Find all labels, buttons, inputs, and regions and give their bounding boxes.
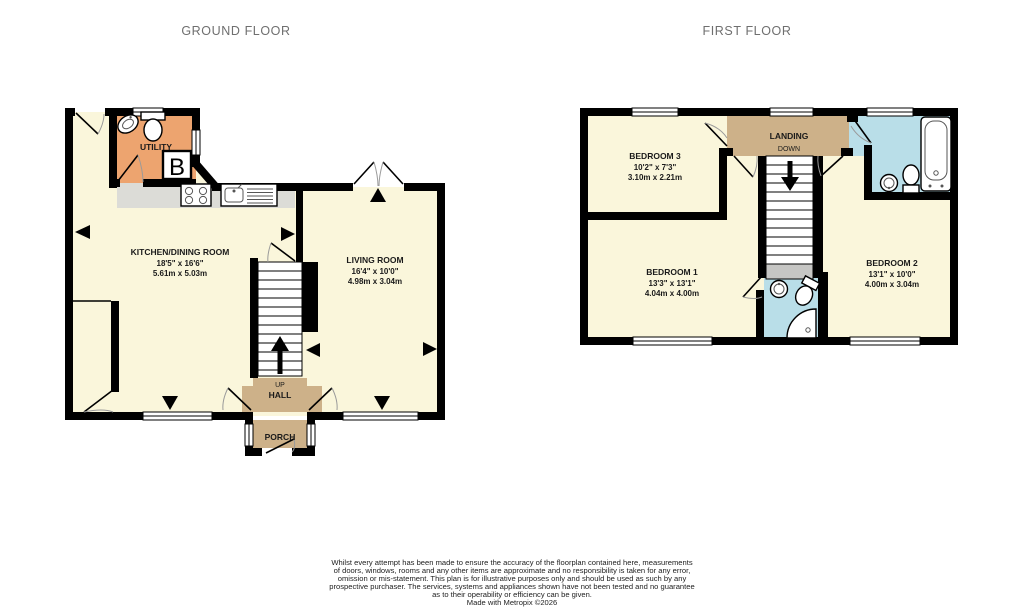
kitchen-window [143, 412, 212, 420]
porch-left-window [245, 424, 253, 446]
bedroom1-imperial: 13'3" x 13'1" [649, 279, 696, 288]
bedroom3-window [632, 108, 678, 116]
first-floor-stairs [766, 156, 813, 279]
disclaimer-block: Whilst every attempt has been made to en… [329, 558, 694, 607]
ground-floor-title: GROUND FLOOR [181, 24, 290, 38]
living-metric: 4.98m x 3.04m [348, 277, 402, 286]
boiler-box: B [163, 151, 191, 181]
patio-doors [354, 162, 403, 186]
bedroom3-imperial: 10'2" x 7'3" [634, 163, 677, 172]
landing-label: LANDING [770, 131, 809, 141]
up-label: UP [275, 382, 285, 389]
porch-label: PORCH [265, 432, 296, 442]
down-label: DOWN [778, 146, 800, 153]
kitchen-label: KITCHEN/DINING ROOM [131, 247, 230, 257]
bedroom1-metric: 4.04m x 4.00m [645, 289, 699, 298]
kitchen-metric: 5.61m x 5.03m [153, 269, 207, 278]
bedroom2-label: BEDROOM 2 [866, 258, 918, 268]
bedroom1-window [633, 337, 712, 345]
metropix-credit: Made with Metropix ©2026 [467, 598, 557, 607]
bedroom2-metric: 4.00m x 3.04m [865, 280, 919, 289]
living-room-window [343, 412, 418, 420]
shower-basin-icon [771, 281, 788, 298]
landing-window [770, 108, 813, 116]
floorplan-page: GROUND FLOOR FIRST FLOOR [0, 0, 1024, 612]
hall-label: HALL [269, 390, 292, 400]
bathroom-window [867, 108, 913, 116]
living-imperial: 16'4" x 10'0" [352, 267, 399, 276]
porch-right-window [307, 424, 315, 446]
bathroom-toilet-icon [903, 165, 919, 193]
bath-icon [921, 117, 951, 191]
boiler-label: B [169, 154, 185, 181]
bedroom3-metric: 3.10m x 2.21m [628, 173, 682, 182]
ground-floor-plan: B UTILITY KITCHEN/DINING ROOM 18'5" x 16… [65, 108, 445, 456]
bedroom2-nook [821, 156, 866, 196]
bathroom-basin-icon [881, 175, 898, 192]
bedroom2-imperial: 13'1" x 10'0" [869, 270, 916, 279]
ground-floor-stairs [258, 262, 302, 376]
utility-label: UTILITY [140, 142, 172, 152]
bedroom1-label: BEDROOM 1 [646, 267, 698, 277]
utility-side-window [192, 130, 200, 155]
first-floor-title: FIRST FLOOR [702, 24, 791, 38]
bedroom2-window [850, 337, 920, 345]
living-label: LIVING ROOM [346, 255, 403, 265]
bedroom3-label: BEDROOM 3 [629, 151, 681, 161]
kitchen-sink-icon [221, 184, 277, 206]
first-floor-plan: BEDROOM 3 10'2" x 7'3" 3.10m x 2.21m LAN… [580, 108, 958, 345]
floorplan-drawing: GROUND FLOOR FIRST FLOOR [0, 0, 1024, 612]
hob-icon [181, 184, 211, 206]
kitchen-imperial: 18'5" x 16'6" [157, 259, 204, 268]
